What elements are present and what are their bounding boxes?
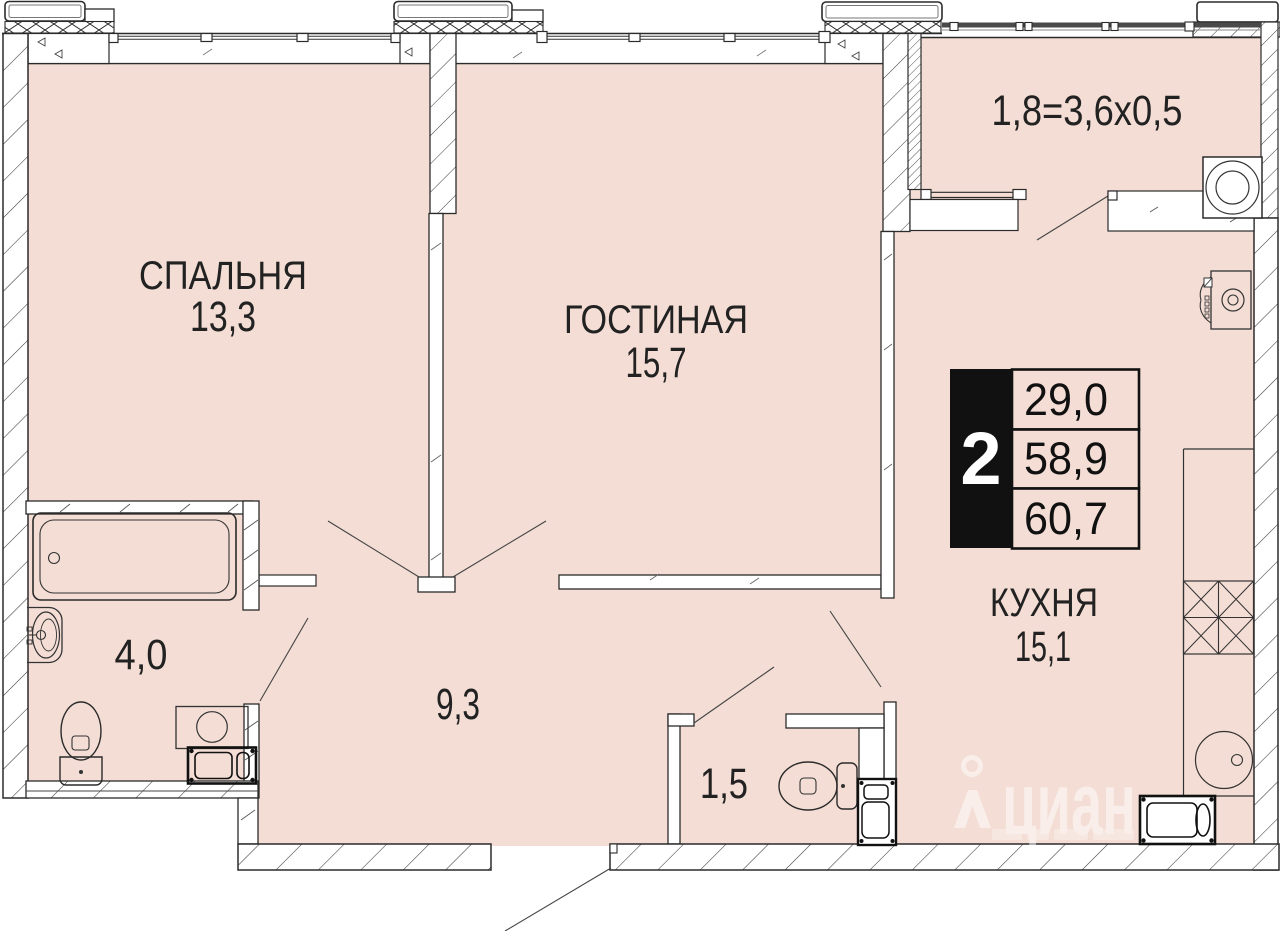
- svg-text:13,3: 13,3: [190, 293, 256, 341]
- svg-text:1,5: 1,5: [700, 760, 748, 808]
- svg-text:15,1: 15,1: [1015, 623, 1071, 671]
- svg-text:1,8=3,6x0,5: 1,8=3,6x0,5: [992, 87, 1183, 135]
- svg-text:СПАЛЬНЯ: СПАЛЬНЯ: [139, 254, 307, 298]
- svg-text:60,7: 60,7: [1024, 493, 1108, 544]
- svg-text:58,9: 58,9: [1024, 433, 1108, 484]
- svg-text:4,0: 4,0: [115, 631, 168, 679]
- svg-text:2: 2: [960, 417, 1001, 500]
- svg-text:29,0: 29,0: [1024, 374, 1108, 425]
- svg-text:9,3: 9,3: [436, 680, 480, 729]
- svg-text:КУХНЯ: КУХНЯ: [990, 581, 1098, 625]
- svg-text:15,7: 15,7: [626, 339, 687, 387]
- svg-text:ГОСТИНАЯ: ГОСТИНАЯ: [564, 298, 748, 342]
